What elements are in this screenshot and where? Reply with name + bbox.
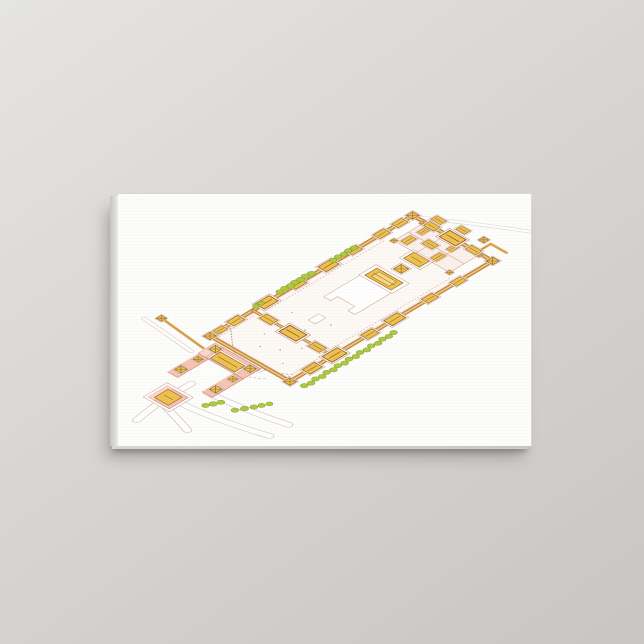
gate-bushes-part bbox=[208, 401, 219, 408]
canvas-wrap-edge bbox=[110, 196, 118, 446]
northeast-wall-gates-part bbox=[477, 236, 491, 244]
canvas-print bbox=[118, 193, 531, 445]
canvas-face bbox=[118, 193, 532, 446]
wall-background bbox=[0, 0, 644, 644]
gate-bushes-part bbox=[256, 402, 266, 408]
gate-bushes-part bbox=[265, 401, 275, 407]
palace-illustration bbox=[118, 194, 531, 446]
palace-plan bbox=[118, 194, 531, 446]
roads-part bbox=[133, 404, 161, 420]
